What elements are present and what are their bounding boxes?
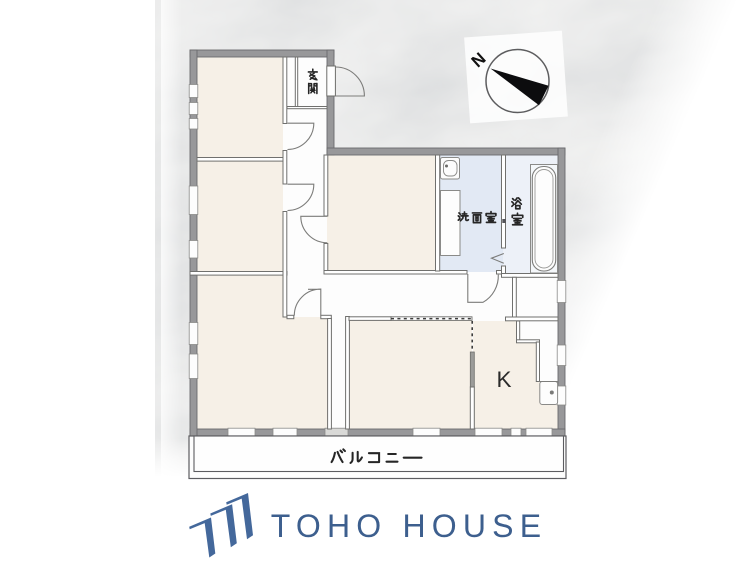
svg-text:TOHO HOUSE: TOHO HOUSE xyxy=(271,508,548,544)
svg-text:K: K xyxy=(496,367,511,392)
